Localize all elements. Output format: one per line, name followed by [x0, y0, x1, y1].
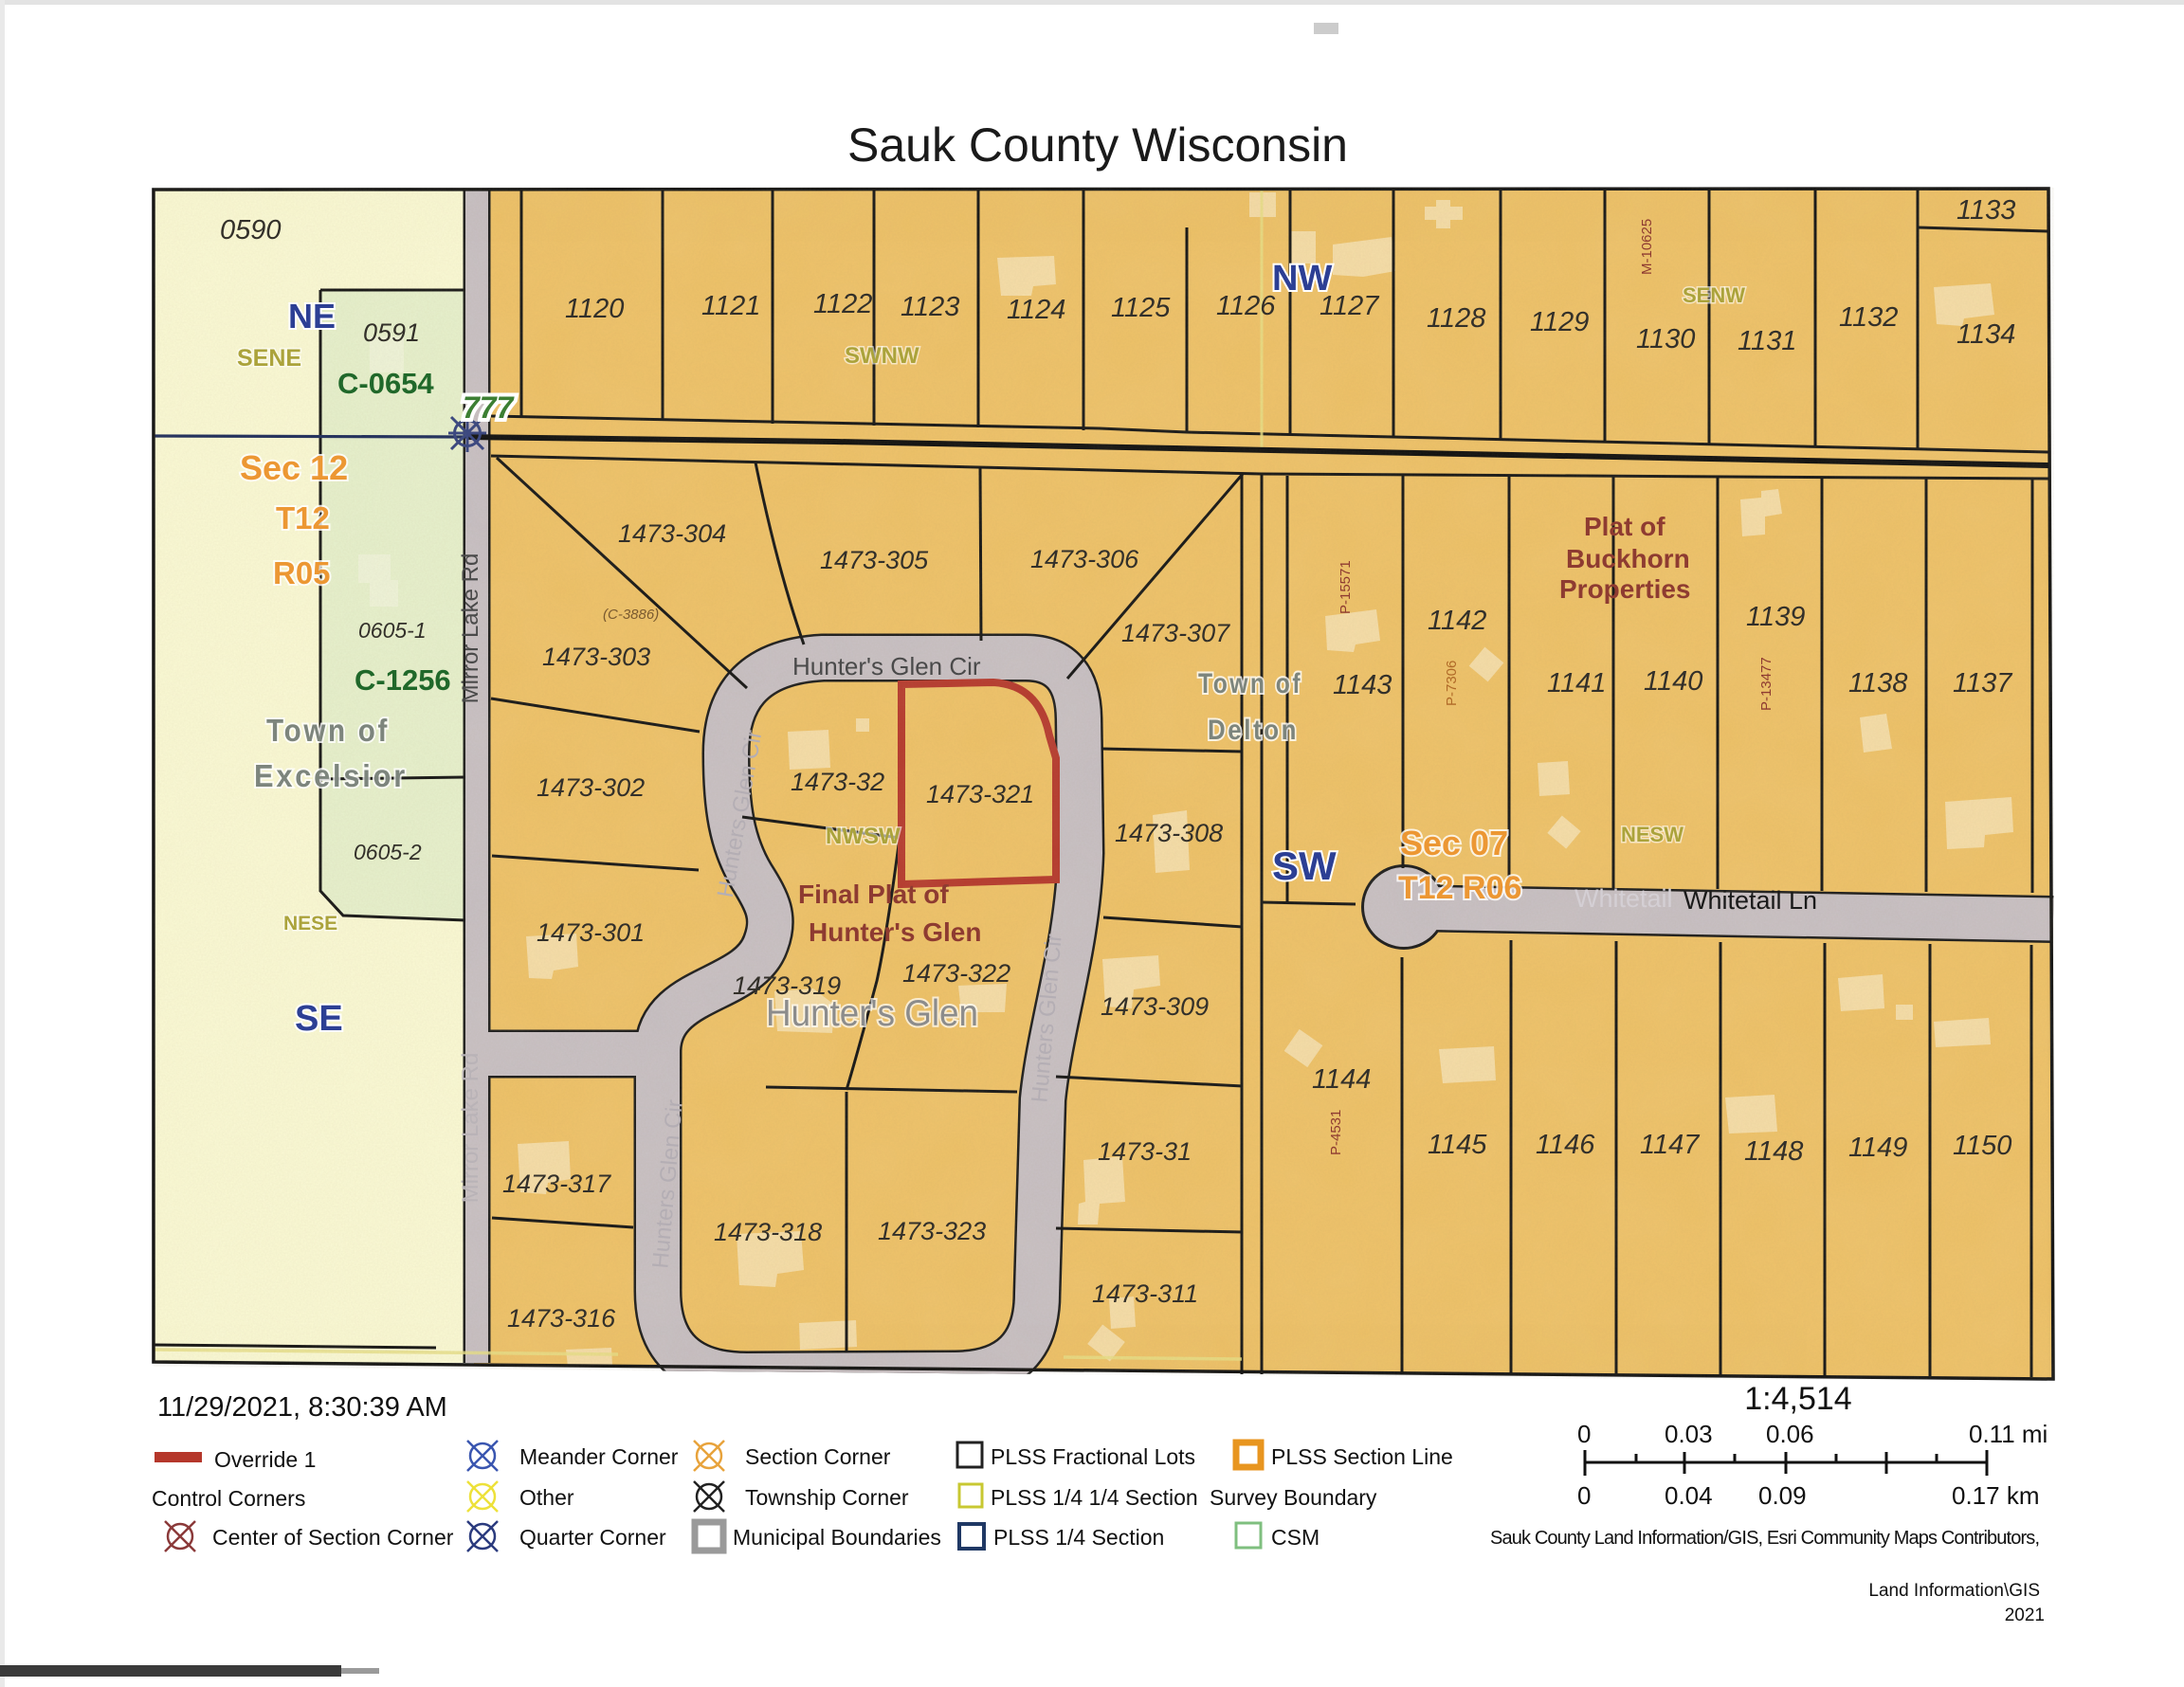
- svg-text:1123: 1123: [901, 292, 959, 322]
- svg-text:1128: 1128: [1427, 303, 1485, 334]
- svg-text:1143: 1143: [1333, 670, 1392, 700]
- svg-text:1144: 1144: [1312, 1064, 1371, 1095]
- svg-text:1131: 1131: [1738, 326, 1796, 356]
- svg-text:1138: 1138: [1848, 668, 1907, 698]
- svg-text:Override 1: Override 1: [214, 1447, 316, 1472]
- svg-text:1473-32: 1473-32: [791, 768, 884, 796]
- svg-text:0605-2: 0605-2: [354, 840, 422, 864]
- svg-text:Section Corner: Section Corner: [745, 1444, 891, 1469]
- svg-text:1120: 1120: [565, 294, 624, 324]
- svg-text:0: 0: [1577, 1481, 1591, 1510]
- svg-text:1473-304: 1473-304: [618, 519, 726, 548]
- svg-text:1134: 1134: [1956, 319, 2015, 350]
- svg-text:1473-322: 1473-322: [902, 959, 1010, 988]
- svg-text:1473-309: 1473-309: [1101, 992, 1209, 1021]
- svg-text:Final Plat of: Final Plat of: [798, 880, 949, 909]
- svg-text:1473-31: 1473-31: [1098, 1137, 1192, 1166]
- svg-text:C-0654: C-0654: [337, 367, 434, 400]
- svg-text:PLSS 1/4 1/4 Section: PLSS 1/4 1/4 Section: [991, 1485, 1198, 1510]
- svg-text:Hunter's Glen: Hunter's Glen: [766, 993, 978, 1034]
- svg-text:0: 0: [1577, 1420, 1591, 1448]
- svg-text:0605-1: 0605-1: [358, 618, 427, 643]
- svg-text:1473-303: 1473-303: [542, 643, 650, 671]
- svg-text:Town of: Town of: [266, 713, 390, 748]
- svg-text:P-13477: P-13477: [1758, 657, 1774, 711]
- svg-text:Center of Section Corner: Center of Section Corner: [212, 1525, 454, 1550]
- svg-text:1137: 1137: [1953, 668, 2013, 698]
- svg-text:1125: 1125: [1111, 293, 1171, 323]
- svg-text:NESE: NESE: [283, 913, 337, 934]
- svg-text:Survey Boundary: Survey Boundary: [1210, 1485, 1377, 1510]
- svg-text:SE: SE: [295, 999, 343, 1039]
- svg-text:11/29/2021, 8:30:39 AM: 11/29/2021, 8:30:39 AM: [157, 1392, 447, 1423]
- svg-text:1473-306: 1473-306: [1030, 545, 1139, 573]
- svg-text:Town of: Town of: [1198, 668, 1302, 699]
- svg-text:Whitetail: Whitetail: [1574, 884, 1673, 913]
- svg-text:Sec 12: Sec 12: [240, 448, 348, 487]
- svg-text:1133: 1133: [1956, 195, 2015, 226]
- svg-text:0.17 km: 0.17 km: [1952, 1481, 2040, 1510]
- svg-text:M-10625: M-10625: [1639, 219, 1655, 275]
- svg-text:Quarter Corner: Quarter Corner: [519, 1525, 666, 1550]
- svg-text:0.06: 0.06: [1766, 1420, 1814, 1448]
- svg-text:1473-308: 1473-308: [1115, 819, 1223, 847]
- svg-text:1150: 1150: [1953, 1131, 2011, 1161]
- svg-text:Excelsior: Excelsior: [254, 758, 408, 793]
- svg-text:PLSS Section Line: PLSS Section Line: [1271, 1444, 1453, 1469]
- svg-text:1149: 1149: [1848, 1133, 1907, 1163]
- svg-text:0590: 0590: [220, 215, 282, 245]
- svg-text:1140: 1140: [1644, 666, 1702, 697]
- svg-text:1473-316: 1473-316: [507, 1304, 616, 1333]
- svg-text:0.03: 0.03: [1665, 1420, 1713, 1448]
- svg-text:Properties: Properties: [1559, 574, 1691, 604]
- svg-text:1132: 1132: [1839, 302, 1898, 333]
- svg-text:PLSS Fractional Lots: PLSS Fractional Lots: [991, 1444, 1195, 1469]
- svg-text:SENE: SENE: [237, 345, 301, 372]
- svg-text:SENW: SENW: [1683, 283, 1745, 307]
- svg-text:0.11 mi: 0.11 mi: [1969, 1420, 2047, 1448]
- svg-text:P-15571: P-15571: [1338, 560, 1354, 614]
- svg-text:Buckhorn: Buckhorn: [1566, 544, 1690, 573]
- svg-text:2021: 2021: [2005, 1605, 2045, 1625]
- svg-text:777: 777: [463, 390, 516, 425]
- svg-text:1473-317: 1473-317: [502, 1170, 611, 1198]
- svg-text:Sauk County Land Information/G: Sauk County Land Information/GIS, Esri C…: [1490, 1528, 2040, 1549]
- svg-text:C-1256: C-1256: [355, 663, 451, 697]
- svg-text:0.04: 0.04: [1665, 1481, 1713, 1510]
- svg-text:T12: T12: [276, 500, 330, 535]
- svg-text:1122: 1122: [813, 289, 872, 319]
- svg-text:1141: 1141: [1547, 668, 1606, 698]
- svg-text:Mirror Lake Rd: Mirror Lake Rd: [458, 553, 483, 704]
- svg-text:1129: 1129: [1530, 307, 1589, 337]
- svg-text:Meander Corner: Meander Corner: [519, 1444, 679, 1469]
- svg-text:1147: 1147: [1640, 1130, 1701, 1160]
- svg-text:CSM: CSM: [1271, 1525, 1319, 1550]
- svg-text:Municipal Boundaries: Municipal Boundaries: [733, 1525, 941, 1550]
- svg-text:Plat of: Plat of: [1584, 512, 1665, 541]
- svg-text:1473-318: 1473-318: [714, 1218, 822, 1246]
- svg-text:0.09: 0.09: [1758, 1481, 1807, 1510]
- svg-text:NE: NE: [288, 297, 336, 336]
- svg-text:SW: SW: [1272, 843, 1337, 888]
- svg-text:1473-321: 1473-321: [926, 780, 1034, 808]
- svg-text:1146: 1146: [1536, 1130, 1595, 1160]
- svg-text:1473-301: 1473-301: [537, 918, 645, 947]
- svg-text:1473-302: 1473-302: [537, 773, 645, 802]
- svg-text:1142: 1142: [1428, 606, 1486, 636]
- svg-text:(C-3886): (C-3886): [603, 607, 659, 623]
- svg-text:PLSS 1/4 Section: PLSS 1/4 Section: [993, 1525, 1164, 1550]
- svg-text:1127: 1127: [1319, 291, 1380, 321]
- svg-text:Hunter's Glen Cir: Hunter's Glen Cir: [792, 652, 981, 680]
- svg-text:SWNW: SWNW: [845, 343, 919, 369]
- svg-text:Sec 07: Sec 07: [1400, 824, 1508, 862]
- svg-text:1473-311: 1473-311: [1092, 1279, 1198, 1308]
- svg-text:Delton: Delton: [1208, 715, 1299, 746]
- svg-text:1145: 1145: [1428, 1130, 1487, 1160]
- svg-text:0591: 0591: [363, 318, 420, 347]
- svg-text:1124: 1124: [1007, 295, 1065, 325]
- svg-text:1126: 1126: [1216, 291, 1276, 321]
- svg-text:T12 R06: T12 R06: [1398, 870, 1521, 906]
- svg-text:Land Information\GIS: Land Information\GIS: [1868, 1581, 2040, 1601]
- svg-text:Mirror Lake Rd: Mirror Lake Rd: [458, 1053, 483, 1204]
- svg-text:1148: 1148: [1744, 1136, 1803, 1167]
- svg-text:Other: Other: [519, 1485, 574, 1510]
- svg-text:1139: 1139: [1746, 602, 1805, 632]
- svg-text:1473-323: 1473-323: [878, 1217, 986, 1245]
- svg-text:Control Corners: Control Corners: [152, 1486, 305, 1511]
- svg-text:Whitetail Ln: Whitetail Ln: [1683, 886, 1817, 915]
- svg-text:Sauk County Wisconsin: Sauk County Wisconsin: [847, 118, 1348, 172]
- svg-text:1473-305: 1473-305: [820, 546, 929, 574]
- svg-text:R05: R05: [273, 555, 331, 590]
- svg-text:NWSW: NWSW: [826, 824, 901, 849]
- svg-text:Hunter's Glen: Hunter's Glen: [809, 917, 981, 947]
- svg-text:Township Corner: Township Corner: [745, 1485, 909, 1510]
- svg-text:1:4,514: 1:4,514: [1744, 1381, 1851, 1417]
- svg-text:P-7306: P-7306: [1444, 661, 1460, 706]
- svg-text:1121: 1121: [701, 291, 760, 321]
- svg-text:1130: 1130: [1636, 324, 1695, 354]
- svg-text:P-4531: P-4531: [1328, 1110, 1344, 1155]
- svg-text:1473-307: 1473-307: [1121, 619, 1230, 647]
- svg-text:NESW: NESW: [1621, 823, 1683, 846]
